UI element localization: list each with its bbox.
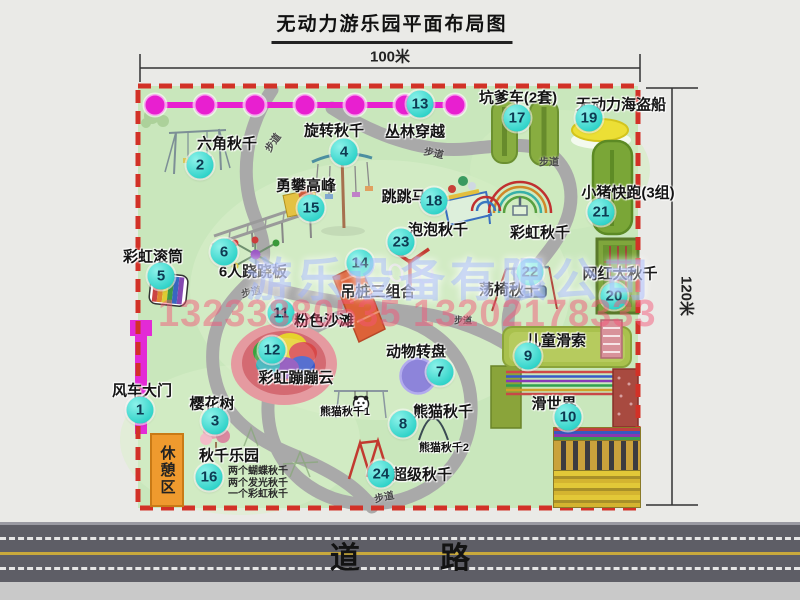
item-label-big-swing: 网红大秋千	[582, 263, 657, 284]
item-badge-slide-world: 10	[555, 404, 582, 431]
item-badge-super-swing: 24	[368, 461, 395, 488]
item-badge-peak-climbing: 15	[298, 195, 325, 222]
item-badge-bubble-swing: 23	[388, 229, 415, 256]
item-label-rainbow-roller: 彩虹滚筒	[123, 246, 183, 267]
item-badge-pirate-ship: 19	[576, 105, 603, 132]
slide-world-stripe-block	[553, 440, 641, 472]
rainbow-cloud-icon	[231, 323, 337, 405]
road: 道 路	[0, 522, 800, 588]
swing-park-notes: 两个蝴蝶秋千 两个发光秋千 一个彩虹秋千	[228, 466, 288, 501]
item-label-panda-swing-1: 熊猫秋千1	[320, 403, 370, 419]
width-dimension-label: 100米	[370, 46, 410, 67]
item-badge-piggy-run: 21	[588, 199, 615, 226]
item-badge-cherry-tree: 3	[202, 408, 229, 435]
item-label-panda-swing-2: 熊猫秋千2	[419, 439, 469, 455]
item-label-swing-park: 秋千乐园	[199, 445, 259, 466]
walk-path-label: 步道	[539, 154, 559, 169]
item-badge-windmill-gate: 1	[127, 397, 154, 424]
item-badge-glider-swing: 22	[517, 259, 544, 286]
item-label-panda-swing: 熊猫秋千	[413, 401, 473, 422]
swing-park-note: 两个发光秋千	[228, 478, 288, 490]
item-badge-animal-turntable: 7	[427, 359, 454, 386]
walk-path-label: 步道	[454, 314, 472, 327]
item-badge-hanging-piles: 14	[347, 250, 374, 277]
item-badge-hexagon-swing: 2	[187, 152, 214, 179]
item-label-rotating-swing: 旋转秋千	[304, 120, 364, 141]
item-label-super-swing: 超级秋千	[392, 464, 452, 485]
item-badge-big-swing: 20	[601, 283, 628, 310]
item-label-rainbow-swing: 彩虹秋千	[510, 222, 570, 243]
item-badge-jumping-horse: 18	[421, 188, 448, 215]
item-badge-jungle-crossing: 13	[407, 91, 434, 118]
item-label-bubble-swing: 泡泡秋千	[408, 219, 468, 240]
item-badge-pink-beach: 11	[268, 300, 295, 327]
item-badge-kengdie-cars: 17	[504, 105, 531, 132]
page-title: 无动力游乐园平面布局图	[271, 9, 512, 44]
item-badge-rotating-swing: 4	[331, 139, 358, 166]
road-shoulder	[0, 582, 800, 600]
item-badge-kids-zipline: 9	[515, 343, 542, 370]
item-label-rainbow-bounce-cloud: 彩虹蹦蹦云	[258, 367, 333, 388]
item-label-pink-beach: 粉色沙滩	[294, 310, 354, 331]
item-badge-rainbow-bounce-cloud: 12	[259, 337, 286, 364]
swing-park-note: 一个彩虹秋千	[228, 489, 288, 501]
item-badge-rainbow-roller: 5	[148, 263, 175, 290]
item-label-hexagon-swing: 六角秋千	[197, 133, 257, 154]
park-layout-plan: 无动力游乐园平面布局图 100米 120米 休憩区 步道 步道 步道 步道 步道…	[0, 0, 800, 600]
item-badge-six-person-seesaw: 6	[211, 239, 238, 266]
swing-park-note: 两个蝴蝶秋千	[228, 466, 288, 478]
item-label-hanging-piles: 吊桩三组合	[340, 281, 415, 302]
height-dimension-label: 120米	[677, 276, 698, 316]
item-badge-panda-swing: 8	[390, 411, 417, 438]
rest-area: 休憩区	[150, 433, 184, 507]
item-label-jungle-crossing: 丛林穿越	[385, 121, 445, 142]
slide-world-wave-block	[553, 470, 641, 508]
road-label: 道 路	[294, 533, 506, 577]
item-badge-swing-park: 16	[196, 464, 223, 491]
item-label-peak-climbing: 勇攀高峰	[276, 175, 336, 196]
